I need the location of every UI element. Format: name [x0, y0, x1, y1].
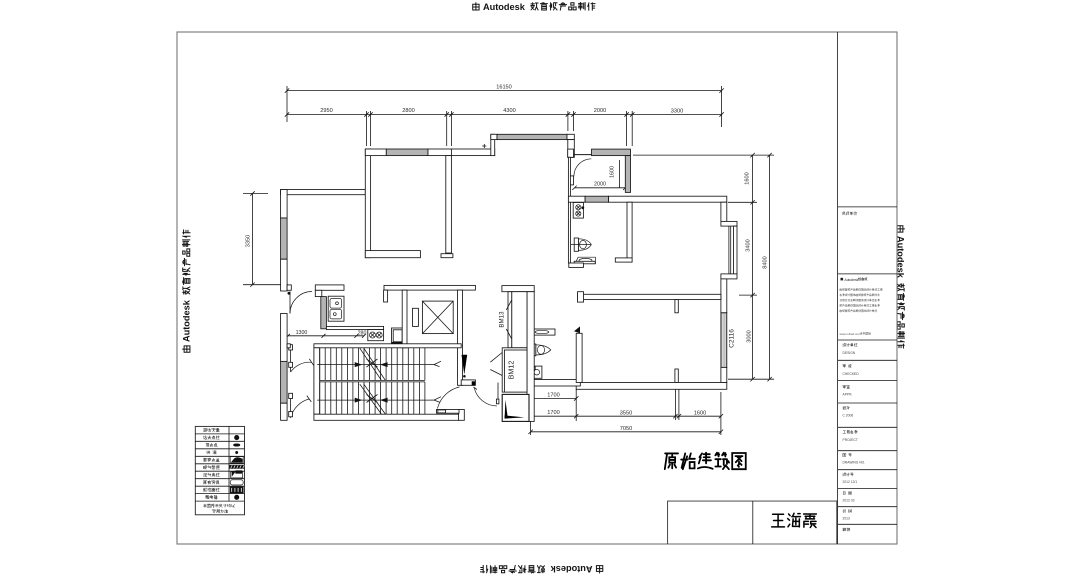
svg-text:16150: 16150	[496, 85, 512, 91]
svg-text:Autodesk: Autodesk	[550, 564, 593, 574]
svg-text:280: 280	[358, 330, 367, 336]
svg-text:C2116: C2116	[729, 329, 736, 348]
svg-text:3550: 3550	[620, 410, 632, 416]
svg-text:1700: 1700	[547, 393, 559, 399]
svg-text:DESIGN: DESIGN	[843, 351, 856, 355]
svg-text:C 2008: C 2008	[843, 414, 854, 418]
svg-text:BM12: BM12	[507, 361, 516, 380]
svg-text:3400: 3400	[746, 239, 752, 251]
svg-text:APPR.: APPR.	[843, 393, 853, 397]
svg-text:BM13: BM13	[499, 311, 506, 328]
svg-text:DRAWING NO.: DRAWING NO.	[843, 461, 866, 465]
svg-text:1600: 1600	[610, 166, 616, 178]
svg-text:3000: 3000	[747, 330, 753, 342]
svg-text:2012 12/1: 2012 12/1	[843, 480, 858, 484]
svg-text:2000: 2000	[594, 182, 606, 188]
svg-text:PROJECT: PROJECT	[843, 438, 858, 442]
svg-text:7050: 7050	[620, 426, 632, 432]
svg-text:Autodesk: Autodesk	[845, 278, 859, 282]
svg-text:CHECKED: CHECKED	[843, 372, 860, 376]
svg-text:1600: 1600	[745, 172, 751, 184]
svg-text:1300: 1300	[296, 330, 308, 336]
svg-text:4300: 4300	[503, 108, 515, 114]
svg-text:8400: 8400	[763, 256, 769, 268]
svg-text:2012 03: 2012 03	[843, 499, 855, 503]
svg-text:1600: 1600	[694, 411, 706, 417]
svg-text:www.mfcad.com: www.mfcad.com	[840, 332, 862, 336]
svg-text:Autodesk: Autodesk	[483, 2, 526, 12]
svg-text:2950: 2950	[320, 108, 332, 114]
svg-text:2000: 2000	[594, 108, 606, 114]
svg-text:1700: 1700	[547, 410, 559, 416]
svg-text:Autodesk: Autodesk	[182, 299, 192, 342]
svg-text:2013: 2013	[843, 517, 851, 521]
svg-text:3300: 3300	[671, 109, 683, 115]
svg-text:1: 1	[843, 528, 845, 532]
svg-text:2800: 2800	[402, 108, 414, 114]
svg-text:3350: 3350	[246, 235, 252, 247]
